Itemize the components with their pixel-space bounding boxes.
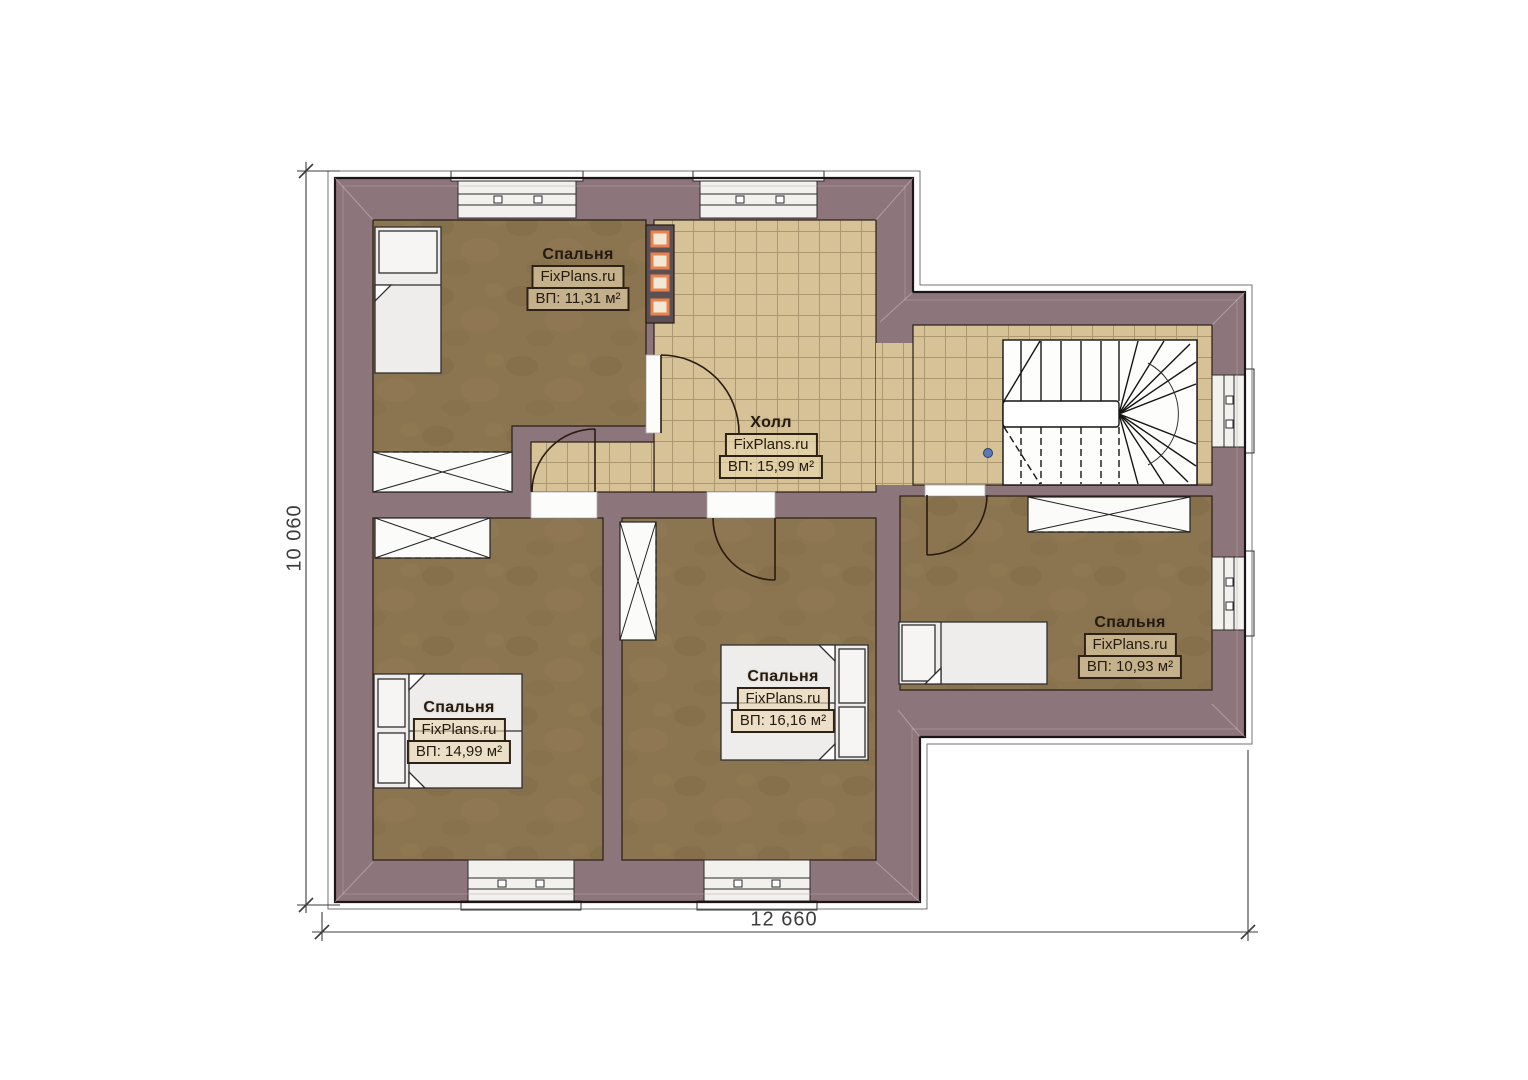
dimension-width: 12 660: [750, 909, 817, 932]
floor-plan-page: Спальня FixPlans.ru ВП: 11,31 м² Холл Fi…: [0, 0, 1528, 1080]
vent-shaft: [620, 522, 656, 640]
wall-extension-top: [876, 292, 1245, 325]
flue-column: [646, 225, 674, 323]
staircase: [1003, 340, 1197, 485]
wall-bedroom-partition: [603, 518, 622, 860]
wall-right-middle: [876, 485, 900, 704]
wall-top: [335, 178, 913, 220]
wardrobe-right-bedroom: [1028, 497, 1190, 532]
bed-single-top-left: [375, 227, 441, 373]
wall-extension-bottom: [898, 690, 1245, 737]
window-right-bedroom: [1212, 551, 1254, 636]
door-opening-bottom-left-bedroom: [531, 492, 597, 518]
floor-passage: [876, 343, 913, 485]
wall-hall-partition: [373, 492, 876, 518]
door-opening-top-left-bedroom: [646, 355, 661, 433]
window-right-stairs: [1212, 369, 1254, 453]
wall-topleft-bedroom-bottom: [512, 426, 654, 442]
bed-double-bottom-left: [374, 674, 522, 788]
floor-hall: [654, 220, 876, 492]
door-opening-right-bedroom: [925, 485, 985, 496]
wardrobe-top-left-bedroom: [373, 452, 512, 492]
marker-dot: [984, 449, 993, 458]
wall-extension-right: [1212, 292, 1245, 737]
wall-bottom: [335, 860, 920, 902]
bed-single-right: [899, 622, 1047, 684]
bed-double-middle: [721, 645, 868, 760]
wardrobe-bottom-left-bedroom: [375, 518, 490, 558]
wall-left: [335, 178, 373, 902]
dimension-height: 10 060: [284, 504, 307, 571]
door-opening-middle-bedroom: [707, 492, 775, 518]
wall-connector: [512, 442, 531, 492]
stair-well-divider: [1003, 401, 1119, 427]
